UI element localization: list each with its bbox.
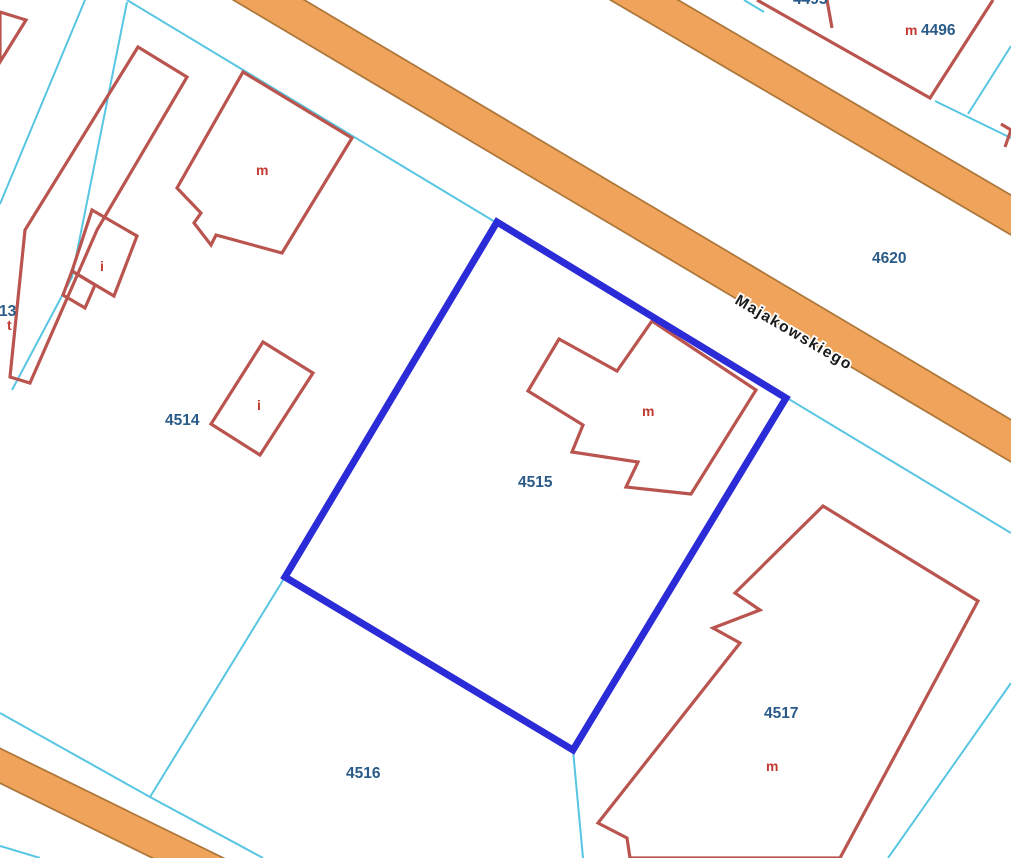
- parcel-label-4496: 4496: [921, 22, 956, 39]
- map-viewport: 13 4514 4515 4516 4517 4620 4496 4495 t …: [0, 0, 1011, 858]
- parcel-label-top-partial: 4495: [793, 0, 828, 8]
- parcel-label-4516: 4516: [346, 765, 381, 782]
- building-letter-m-large: m: [256, 162, 268, 178]
- parcel-label-4620: 4620: [872, 250, 906, 267]
- building-letter-i-small: i: [257, 397, 261, 413]
- building-letter-i-strip: i: [100, 258, 104, 274]
- parcel-label-4517: 4517: [764, 705, 798, 722]
- parcel-label-4514: 4514: [165, 412, 200, 429]
- building-letter-m-selected: m: [642, 403, 654, 419]
- building-letter-m-4496: m: [905, 22, 917, 38]
- building-letter-m-south: m: [766, 758, 778, 774]
- building-letter-t: t: [7, 317, 12, 333]
- parcel-label-4515: 4515: [518, 474, 553, 491]
- map-canvas[interactable]: 13 4514 4515 4516 4517 4620 4496 4495 t …: [0, 0, 1011, 858]
